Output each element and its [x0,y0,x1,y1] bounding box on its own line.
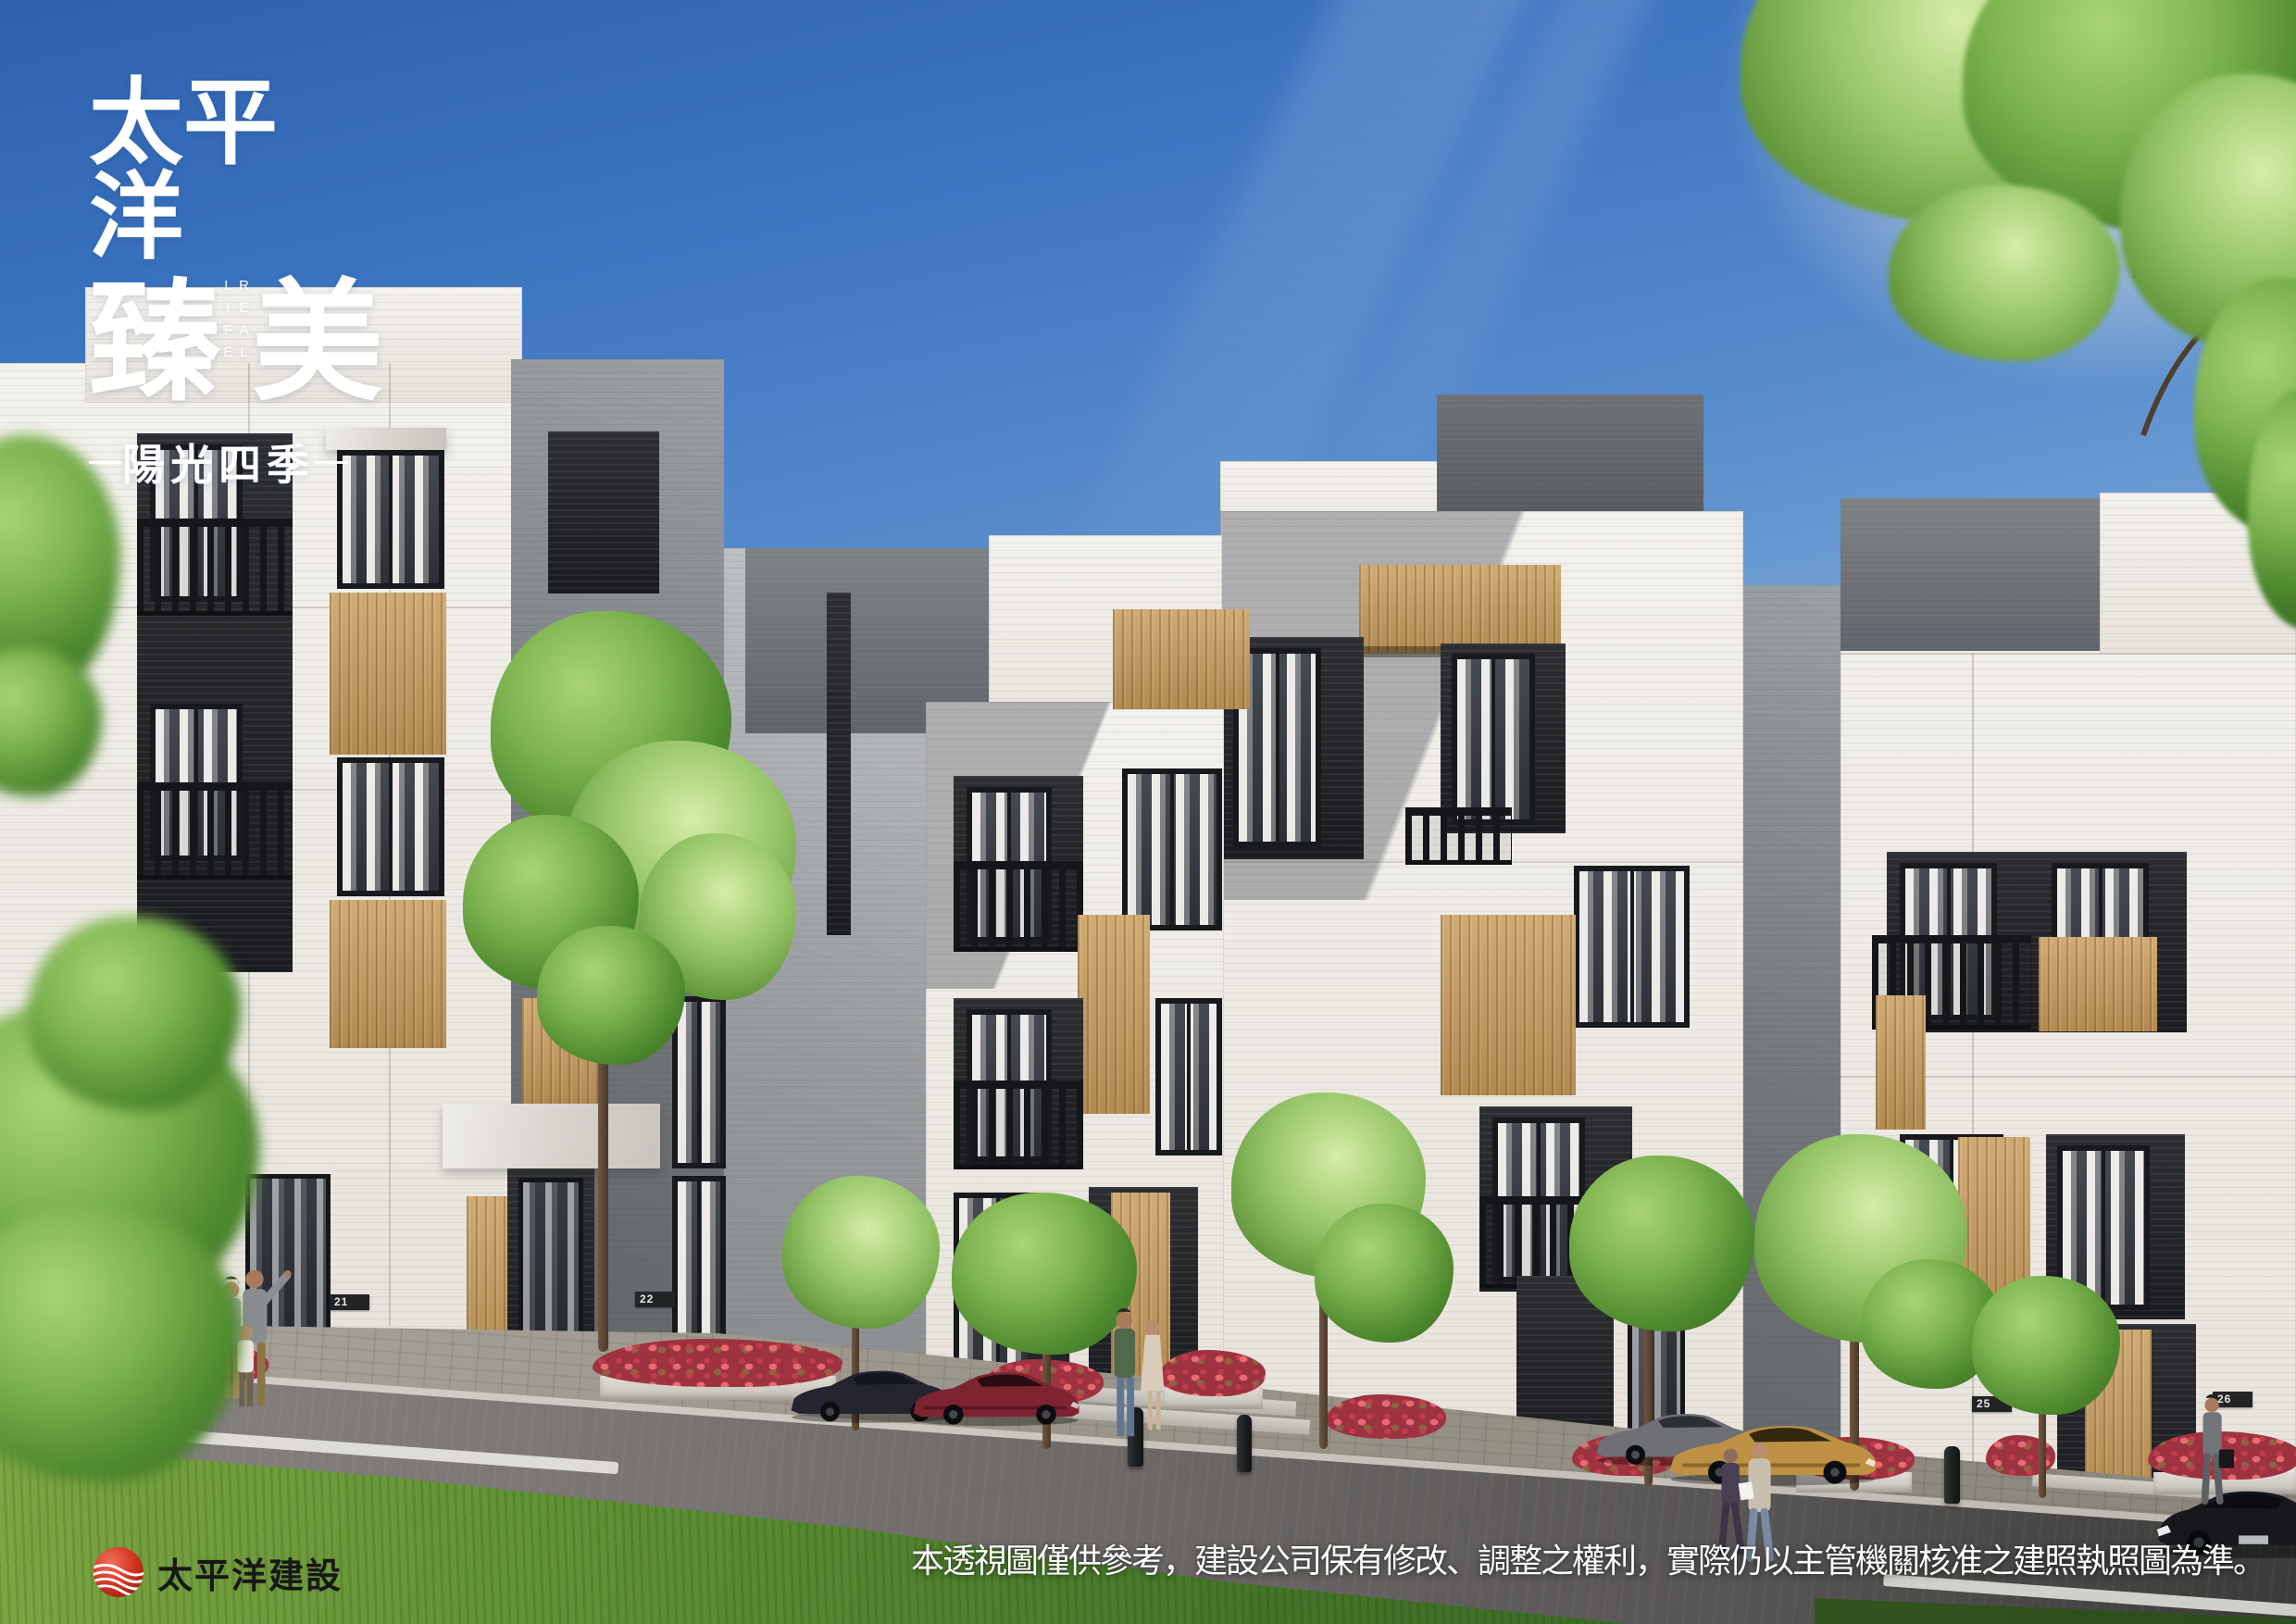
wood-accent-panel [330,593,446,755]
narrow-side-window [827,593,851,935]
logo-line1: 太平洋 [89,78,348,267]
company-logo-block: 太平洋建設 [93,1546,343,1598]
wood-accent-panel [330,900,446,1048]
balcony-railing [1405,807,1512,865]
balcony-railing [954,1081,1083,1169]
entrance-canopy [443,1104,660,1168]
house-number-plaque: 22 [635,1292,675,1307]
red-wave-sphere-logo-icon [93,1546,144,1598]
balcony-railing [954,861,1083,952]
facade-joint [1220,861,1743,863]
window [337,757,444,896]
tree-canopy [1569,1156,1754,1331]
window [1452,654,1535,825]
company-name: 太平洋建設 [157,1547,343,1598]
foreground-foliage [28,917,241,1111]
overhanging-foliage [1889,185,2120,361]
house-number: 25 [1977,1397,1990,1410]
window-recess [548,431,659,593]
window [1574,866,1690,1028]
wood-accent-panel [1441,915,1576,1095]
wood-accent-panel [1078,915,1150,1114]
window [337,450,444,589]
logo-char-zhen: 臻 [89,278,220,409]
wood-box-volume [1113,609,1250,709]
facade-joint [1841,653,2296,655]
balcony-railing [137,782,293,880]
bollard [1237,1415,1252,1472]
logo-subtitle: 陽光四季 [122,431,315,493]
house-number: 21 [334,1295,348,1308]
window [672,996,726,1168]
couple-at-door [1105,1307,1170,1444]
wood-accent-panel [2039,937,2157,1031]
project-logo: 太平洋 臻 REAL LIFE 美 陽光四季 [89,78,348,493]
logo-subtitle-row: 陽光四季 [89,431,348,493]
architectural-rendering-poster: 21 22 25 26 [0,0,2296,1624]
flower-bush [1159,1350,1266,1396]
house-number: 22 [640,1293,654,1305]
window [1155,998,1222,1156]
disclaimer-text: 本透視圖僅供參考，建設公司保有修改、調整之權利，實際仍以主管機關核准之建照執照圖… [911,1541,2281,1580]
flower-bush [1326,1394,1446,1439]
window [1122,768,1222,931]
building-right-roof-volume [1841,498,2104,651]
tree-canopy [1315,1204,1454,1343]
logo-char-mei: 美 [252,278,383,409]
logo-line2: 臻 REAL LIFE 美 [89,276,348,411]
wood-accent-panel [1876,995,1926,1130]
house-number-plaque: 21 [330,1294,369,1310]
tree-canopy [782,1176,940,1329]
tree-canopy [1972,1276,2120,1415]
bollard [1944,1446,1960,1504]
businessman-with-briefcase [2192,1393,2237,1506]
logo-vertical-caption: REAL LIFE [220,278,252,409]
subtitle-dash-left [89,461,122,464]
wood-box-volume [1359,565,1561,654]
tree-canopy [537,926,685,1065]
subtitle-dash-right [315,461,348,464]
sports-car-maroon [909,1348,1080,1445]
balcony-railing [137,518,293,616]
